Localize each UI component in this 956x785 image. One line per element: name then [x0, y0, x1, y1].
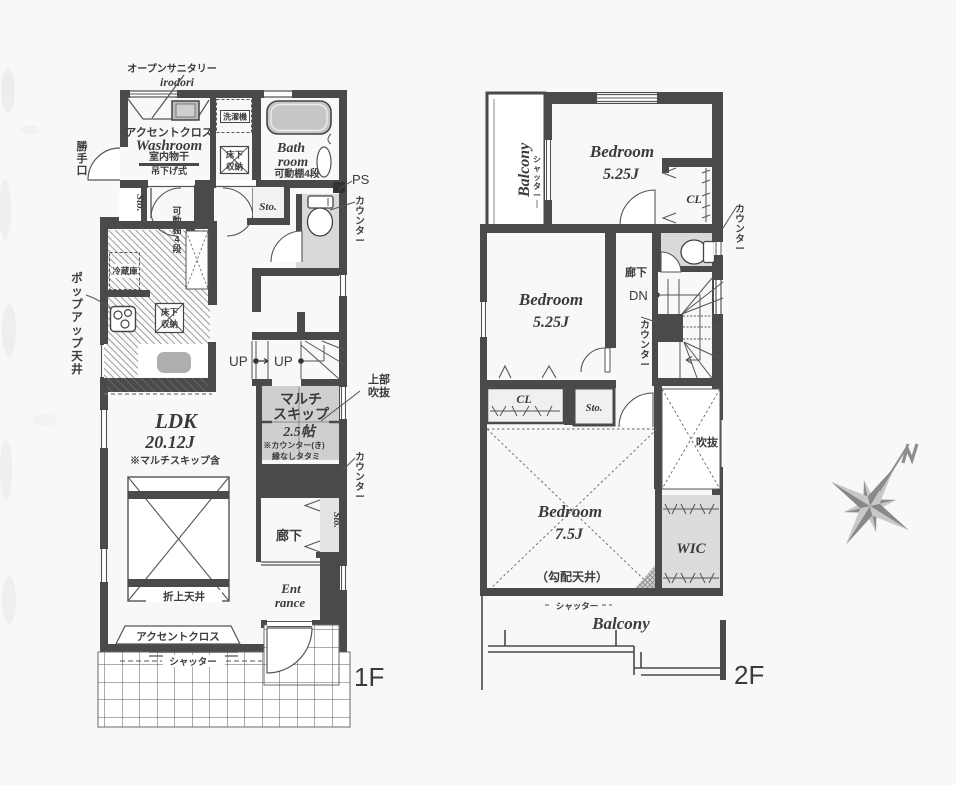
svg-text:Bedroom: Bedroom [537, 502, 602, 521]
svg-text:（勾配天井）: （勾配天井） [536, 569, 608, 584]
svg-text:ポップアップ天井: ポップアップ天井 [71, 271, 83, 376]
svg-text:※カウンター(き): ※カウンター(き) [263, 440, 325, 450]
svg-text:収納: 収納 [226, 162, 243, 172]
svg-text:カウンター: カウンター [355, 452, 365, 503]
svg-text:冷蔵庫: 冷蔵庫 [112, 266, 138, 276]
svg-text:Bath: Bath [276, 141, 305, 156]
svg-text:20.12J: 20.12J [144, 432, 196, 452]
svg-text:CL: CL [516, 392, 531, 406]
svg-text:UP: UP [274, 354, 293, 369]
svg-text:廊下: 廊下 [276, 528, 302, 543]
svg-text:rance: rance [275, 595, 306, 610]
svg-text:2.5帖: 2.5帖 [282, 423, 318, 440]
svg-text:カウンター: カウンター [355, 196, 365, 247]
svg-text:※マルチスキップ含: ※マルチスキップ含 [130, 454, 221, 467]
svg-text:吹抜: 吹抜 [696, 435, 719, 449]
svg-text:吹抜: 吹抜 [368, 385, 391, 399]
svg-text:折上天井: 折上天井 [163, 590, 205, 603]
svg-text:5.25J: 5.25J [603, 166, 640, 183]
svg-text:縁なしタタミ: 縁なしタタミ [272, 451, 320, 461]
svg-text:LDK: LDK [154, 409, 199, 433]
svg-text:カウンター: カウンター [640, 320, 650, 371]
svg-text:床下: 床下 [226, 150, 244, 160]
svg-text:CL: CL [686, 192, 701, 206]
svg-text:Sto.: Sto. [259, 201, 276, 213]
svg-text:可動棚4段: 可動棚4段 [274, 167, 320, 180]
svg-text:DN: DN [629, 288, 648, 303]
svg-text:UP: UP [229, 354, 248, 369]
svg-text:2F: 2F [734, 660, 764, 690]
svg-text:WIC: WIC [676, 541, 706, 557]
svg-text:PS: PS [352, 172, 370, 187]
svg-text:勝手口: 勝手口 [77, 139, 89, 177]
svg-text:7.5J: 7.5J [555, 526, 584, 543]
svg-text:Sto.: Sto. [134, 194, 146, 211]
svg-text:可動棚4段: 可動棚4段 [172, 206, 182, 254]
svg-text:室内物干: 室内物干 [149, 150, 189, 163]
svg-text:room: room [278, 155, 308, 170]
svg-text:Bedroom: Bedroom [589, 142, 654, 161]
svg-text:上部: 上部 [368, 372, 390, 386]
svg-text:Ent: Ent [280, 581, 301, 596]
svg-text:スキップ: スキップ [273, 406, 330, 422]
svg-text:マルチ: マルチ [280, 391, 322, 407]
svg-text:オープンサニタリー: オープンサニタリー [127, 62, 216, 75]
svg-text:廊下: 廊下 [625, 265, 647, 279]
svg-text:洗濯機: 洗濯機 [223, 112, 247, 122]
svg-text:Balcony: Balcony [516, 142, 533, 198]
svg-text:アクセントクロス: アクセントクロス [136, 631, 219, 643]
svg-text:Sto.: Sto. [586, 403, 603, 414]
svg-text:床下: 床下 [161, 307, 179, 317]
svg-text:5.25J: 5.25J [533, 314, 570, 331]
svg-text:カウンター: カウンター [735, 204, 745, 255]
svg-text:収納: 収納 [161, 319, 178, 329]
svg-text:吊下げ式: 吊下げ式 [151, 165, 187, 176]
svg-text:Sto.: Sto. [331, 512, 342, 528]
svg-text:シャッター: シャッター [169, 656, 217, 668]
svg-text:Bedroom: Bedroom [518, 290, 583, 309]
svg-text:irodori: irodori [160, 75, 195, 89]
svg-text:Balcony: Balcony [591, 614, 650, 633]
svg-text:1F: 1F [354, 662, 384, 692]
svg-text:シャッター: シャッター [556, 601, 599, 611]
svg-text:シャッター｜: シャッター｜ [533, 155, 541, 209]
